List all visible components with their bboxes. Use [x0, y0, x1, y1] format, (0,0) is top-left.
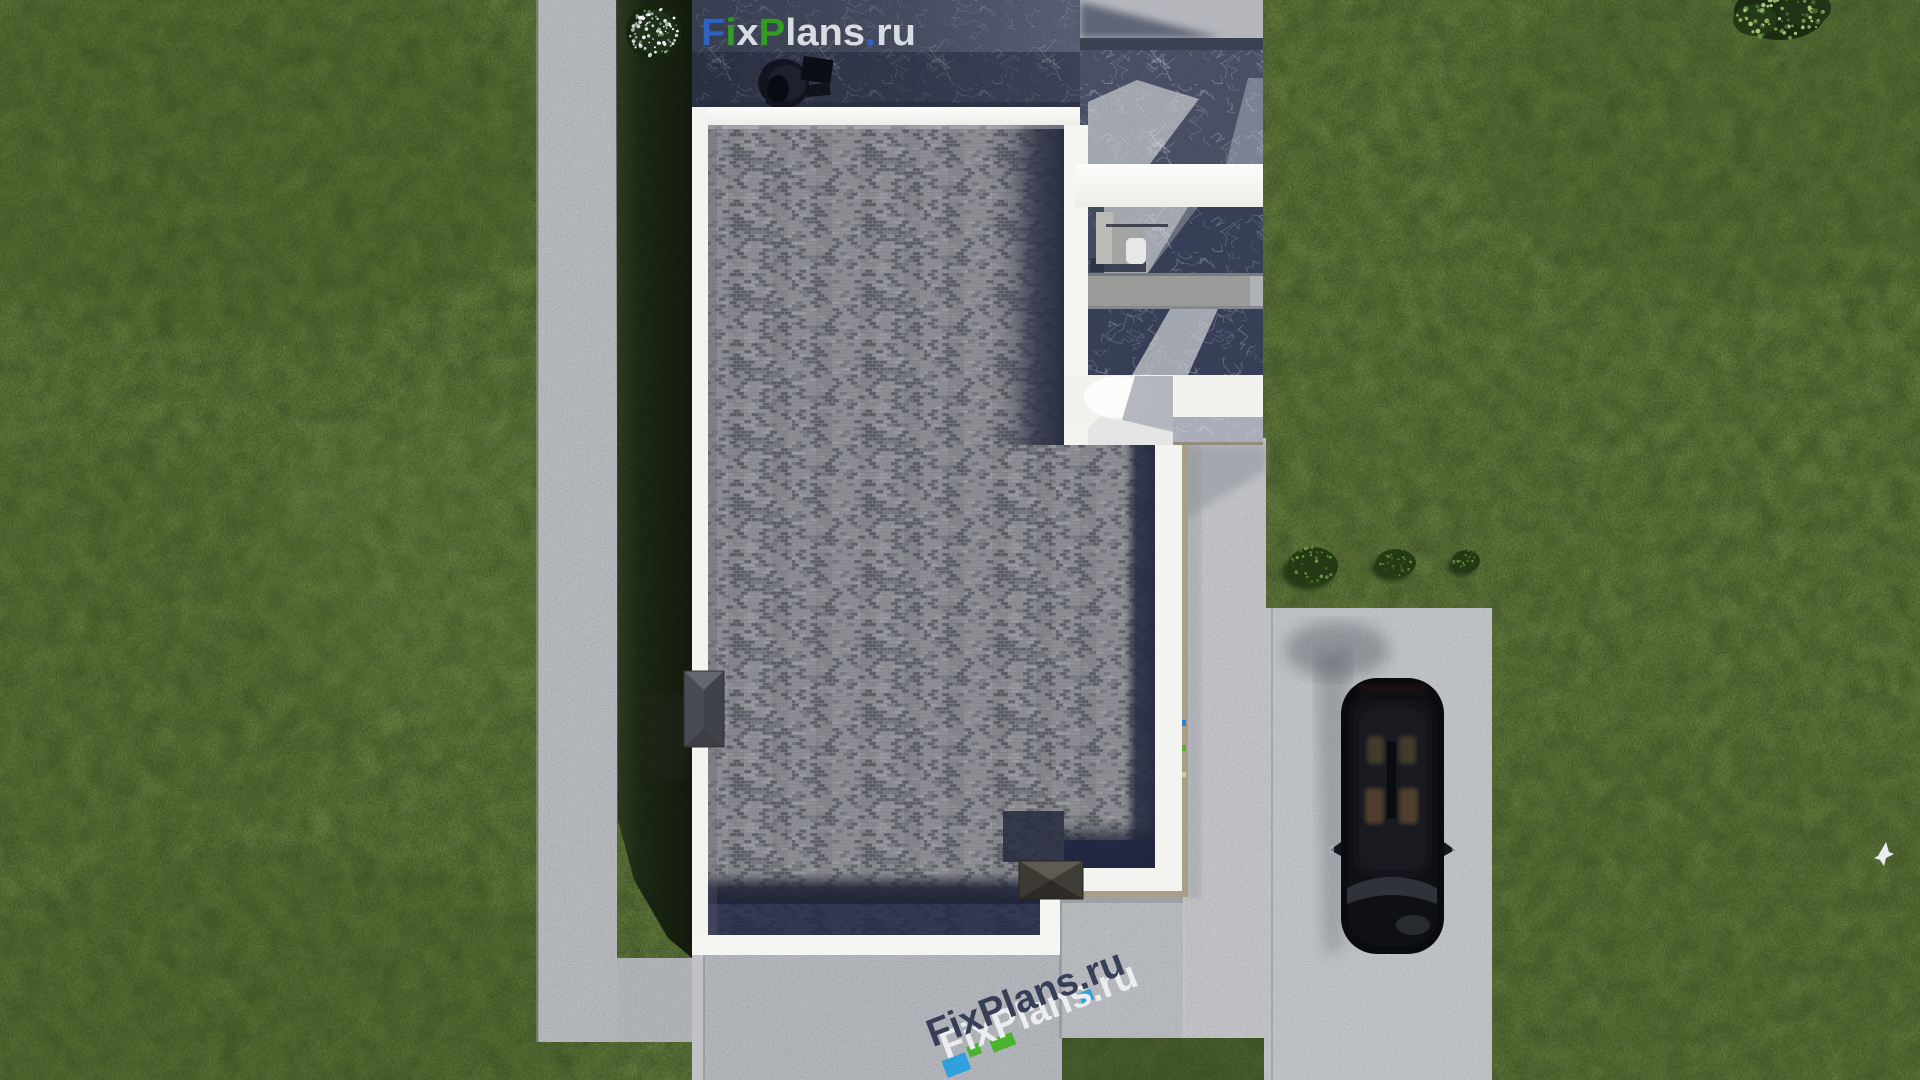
svg-text:FixPlans.ru: FixPlans.ru — [701, 12, 916, 54]
